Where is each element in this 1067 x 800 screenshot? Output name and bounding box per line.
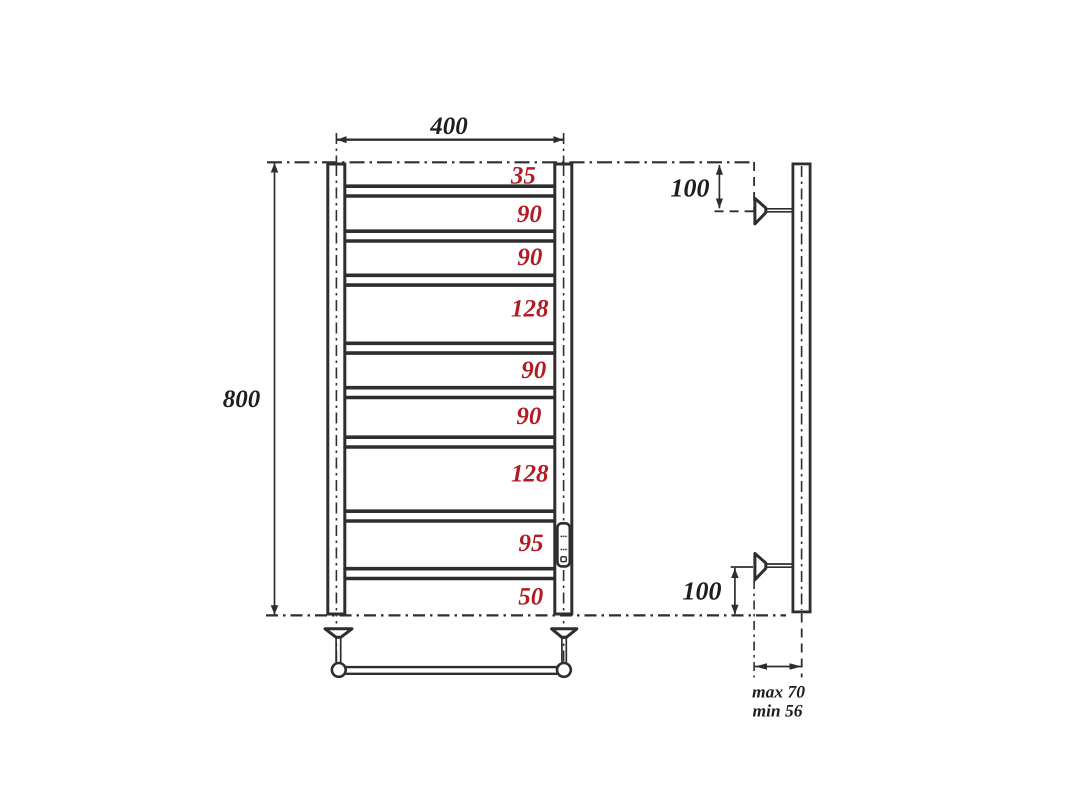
svg-text:90: 90 <box>517 201 543 228</box>
svg-text:min 56: min 56 <box>752 701 802 721</box>
svg-text:90: 90 <box>521 357 547 384</box>
svg-text:max 70: max 70 <box>752 682 805 702</box>
svg-text:90: 90 <box>516 403 542 430</box>
svg-text:50: 50 <box>518 583 544 610</box>
svg-text:128: 128 <box>511 461 549 488</box>
svg-text:95: 95 <box>519 530 544 557</box>
svg-text:90: 90 <box>517 244 543 271</box>
svg-text:400: 400 <box>429 113 468 140</box>
svg-text:100: 100 <box>671 174 710 203</box>
svg-text:100: 100 <box>683 577 722 606</box>
svg-text:128: 128 <box>511 296 549 323</box>
svg-text:800: 800 <box>223 386 261 413</box>
svg-text:35: 35 <box>510 163 536 190</box>
